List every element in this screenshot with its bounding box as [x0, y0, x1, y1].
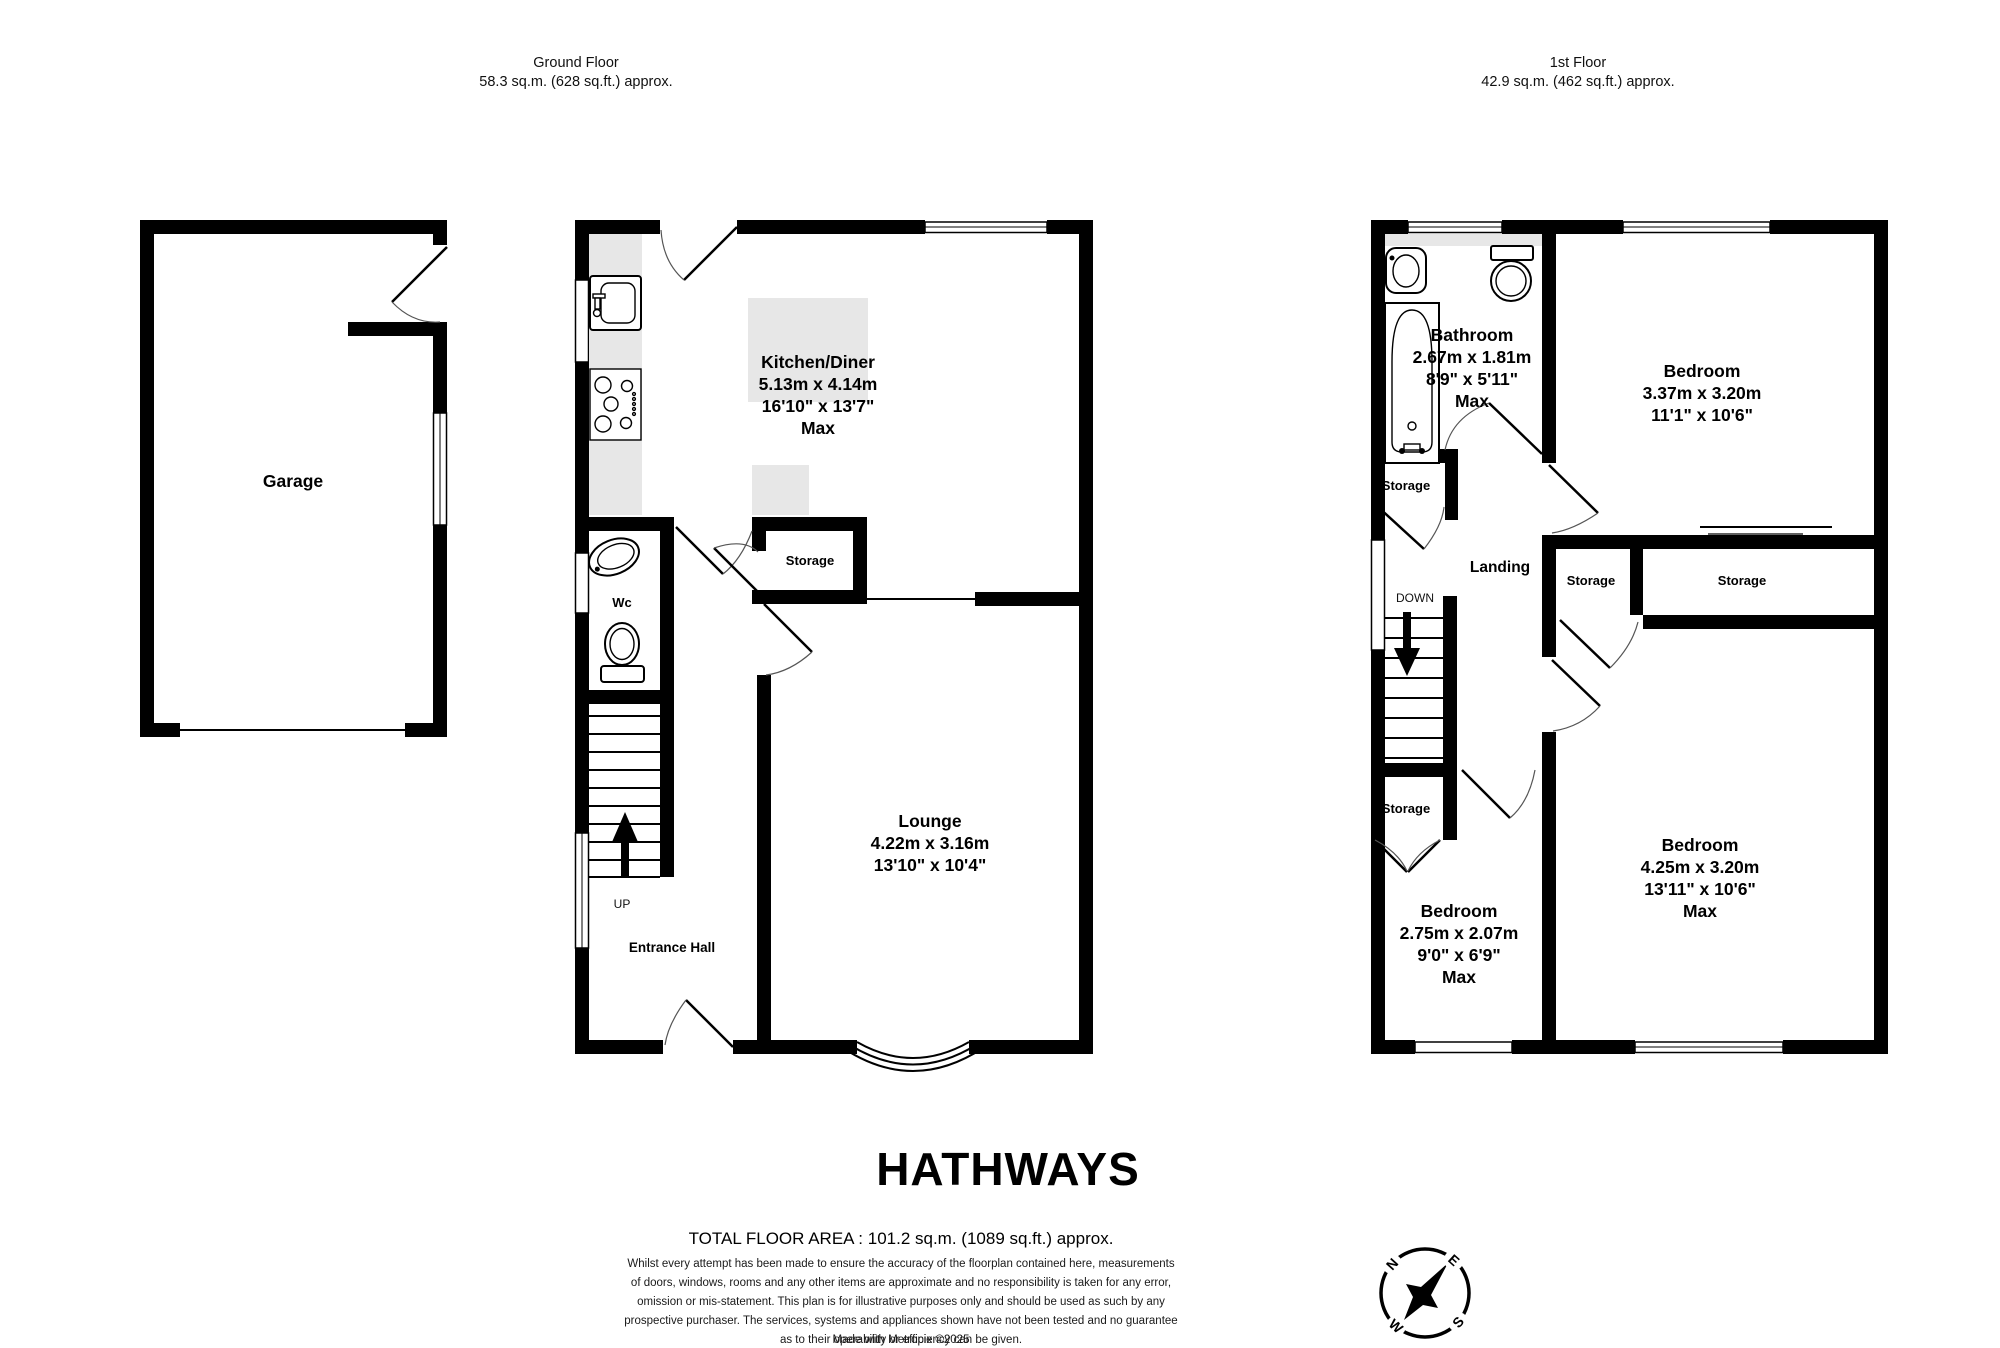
- garage-side-door: [392, 247, 447, 322]
- lounge-metric: 4.22m x 3.16m: [871, 833, 990, 853]
- front-door: [665, 1000, 733, 1047]
- bathroom-shelf: [1385, 234, 1542, 246]
- storage-mid-label: Storage: [1567, 573, 1615, 588]
- kitchen-imperial: 16'10" x 13'7": [762, 396, 875, 416]
- storage-under-stairs-label: Storage: [1382, 801, 1430, 816]
- kitchen-hob: [590, 369, 641, 440]
- ground-floor-header: Ground Floor 58.3 sq.m. (628 sq.ft.) app…: [479, 55, 672, 90]
- floorplan-canvas: Ground Floor 58.3 sq.m. (628 sq.ft.) app…: [0, 0, 2000, 1348]
- bedroom2-name: Bedroom: [1662, 835, 1739, 855]
- disclaimer-line-2: of doors, windows, rooms and any other i…: [631, 1277, 1171, 1289]
- bedroom2-metric: 4.25m x 3.20m: [1641, 857, 1760, 877]
- entrance-hall-label: Entrance Hall: [629, 940, 715, 955]
- bedroom3-label: Bedroom 2.75m x 2.07m 9'0" x 6'9" Max: [1400, 901, 1519, 987]
- bow-window: [843, 1042, 983, 1071]
- disclaimer-line-1: Whilst every attempt has been made to en…: [627, 1258, 1174, 1270]
- bathroom-name: Bathroom: [1431, 325, 1514, 345]
- bedroom2-max: Max: [1683, 901, 1717, 921]
- bathroom-sink: [1386, 248, 1426, 293]
- total-floor-area: TOTAL FLOOR AREA : 101.2 sq.m. (1089 sq.…: [689, 1229, 1114, 1248]
- back-door: [661, 227, 737, 280]
- storage-right-label: Storage: [1718, 573, 1766, 588]
- compass-rose: N E S W: [1381, 1249, 1469, 1337]
- wardrobe-rail-lines: [1700, 527, 1832, 534]
- bathroom-imperial: 8'9" x 5'11": [1426, 369, 1518, 389]
- disclaimer-line-3: omission or mis-statement. This plan is …: [637, 1296, 1165, 1308]
- bedroom1-name: Bedroom: [1664, 361, 1741, 381]
- first-floor-area: 42.9 sq.m. (462 sq.ft.) approx.: [1481, 74, 1674, 90]
- bathroom-max: Max: [1455, 391, 1489, 411]
- first-floor-header: 1st Floor 42.9 sq.m. (462 sq.ft.) approx…: [1481, 55, 1674, 90]
- bathroom-toilet: [1491, 246, 1533, 301]
- bedroom1-imperial: 11'1" x 10'6": [1651, 405, 1753, 425]
- down-arrow-icon: [1394, 612, 1420, 676]
- ground-floor-title: Ground Floor: [533, 55, 619, 71]
- garage-window: [434, 413, 447, 525]
- storage-gf-label: Storage: [786, 553, 834, 568]
- lounge-name: Lounge: [898, 811, 961, 831]
- up-arrow-icon: [612, 812, 638, 878]
- bedroom2-door: [1552, 660, 1600, 731]
- ground-floor-interior-walls: [575, 517, 1093, 1054]
- down-label: DOWN: [1396, 591, 1434, 605]
- bathroom-metric: 2.67m x 1.81m: [1413, 347, 1532, 367]
- kitchen-max: Max: [801, 418, 835, 438]
- bedroom3-metric: 2.75m x 2.07m: [1400, 923, 1519, 943]
- wc-toilet: [601, 623, 644, 682]
- hathways-logo: HATHWAYS: [876, 1143, 1140, 1195]
- bedroom3-name: Bedroom: [1421, 901, 1498, 921]
- garage-label: Garage: [263, 471, 324, 491]
- floorplan-page: Ground Floor 58.3 sq.m. (628 sq.ft.) app…: [0, 0, 2000, 1348]
- lounge-label: Lounge 4.22m x 3.16m 13'10" x 10'4": [871, 811, 990, 875]
- disclaimer: Whilst every attempt has been made to en…: [624, 1258, 1177, 1346]
- lounge-imperial: 13'10" x 10'4": [874, 855, 987, 875]
- bedroom1-label: Bedroom 3.37m x 3.20m 11'1" x 10'6": [1643, 361, 1762, 425]
- bedroom1-door: [1549, 465, 1598, 533]
- bedroom3-max: Max: [1442, 967, 1476, 987]
- bedroom2-imperial: 13'11" x 10'6": [1644, 879, 1756, 899]
- bedroom3-door: [1462, 770, 1535, 818]
- storage-gf-door: [714, 544, 758, 592]
- storage-bath-label: Storage: [1382, 478, 1430, 493]
- wc-basin: [584, 531, 645, 582]
- up-label: UP: [614, 897, 631, 911]
- wc-label: Wc: [612, 595, 632, 610]
- kitchen-hall-door: [676, 527, 752, 574]
- landing-label: Landing: [1470, 559, 1530, 576]
- disclaimer-line-4: prospective purchaser. The services, sys…: [624, 1315, 1177, 1327]
- first-floor-stairs: [1385, 618, 1443, 758]
- bedroom3-imperial: 9'0" x 6'9": [1417, 945, 1500, 965]
- metropix-credit: Made with Metropix ©2025: [833, 1334, 970, 1346]
- kitchen-name: Kitchen/Diner: [761, 352, 875, 372]
- storage-mid-door: [1560, 620, 1638, 668]
- kitchen-sink: [590, 276, 641, 330]
- first-floor-title: 1st Floor: [1550, 55, 1607, 71]
- compass-needle: [1404, 1263, 1448, 1320]
- bedroom1-metric: 3.37m x 3.20m: [1643, 383, 1762, 403]
- kitchen-metric: 5.13m x 4.14m: [759, 374, 878, 394]
- lounge-door: [764, 604, 812, 675]
- storage-bath-door: [1377, 506, 1444, 549]
- ground-floor-area: 58.3 sq.m. (628 sq.ft.) approx.: [479, 74, 672, 90]
- bedroom2-label: Bedroom 4.25m x 3.20m 13'11" x 10'6" Max: [1641, 835, 1760, 921]
